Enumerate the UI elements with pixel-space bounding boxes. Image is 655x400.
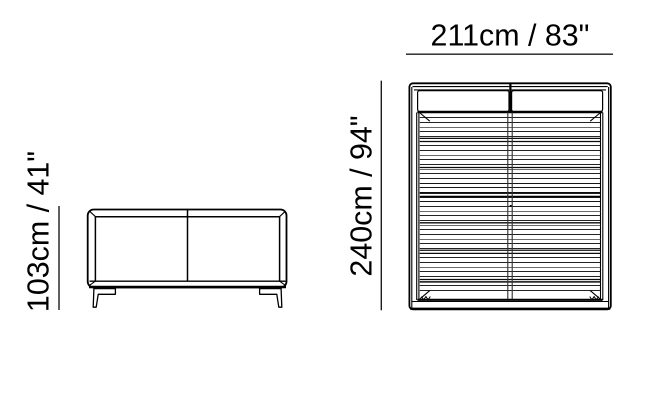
svg-text:103cm / 41": 103cm / 41" <box>22 151 56 312</box>
svg-text:211cm / 83": 211cm / 83" <box>431 19 590 53</box>
svg-text:240cm / 94": 240cm / 94" <box>345 115 379 276</box>
